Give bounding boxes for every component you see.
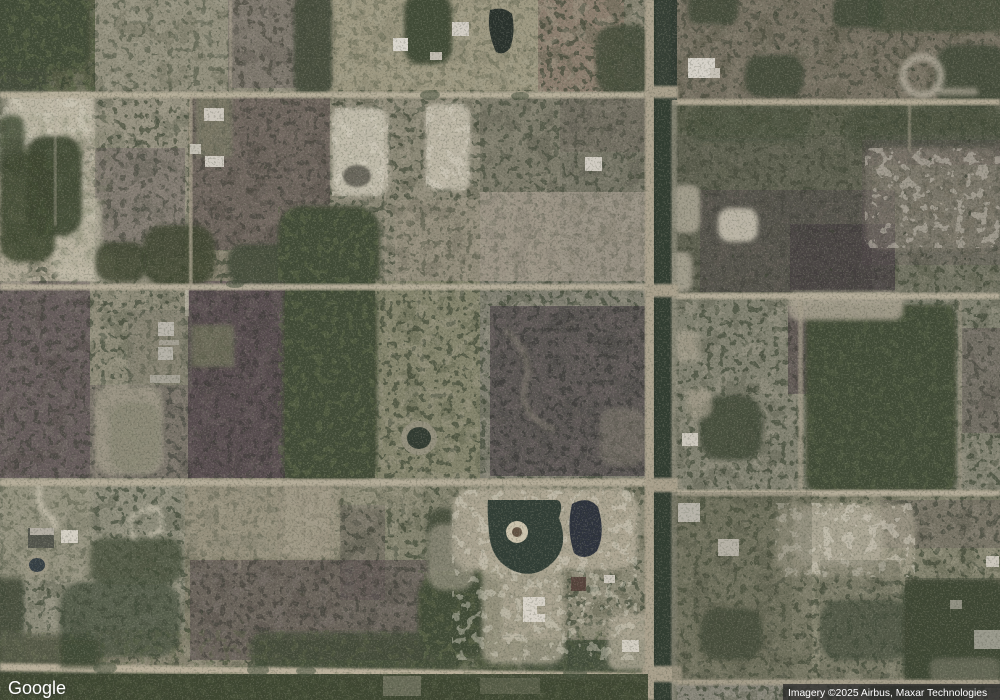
svg-text:Google: Google <box>8 678 66 698</box>
svg-text:Imagery ©2025 Airbus, Maxar Te: Imagery ©2025 Airbus, Maxar Technologies <box>788 688 987 699</box>
